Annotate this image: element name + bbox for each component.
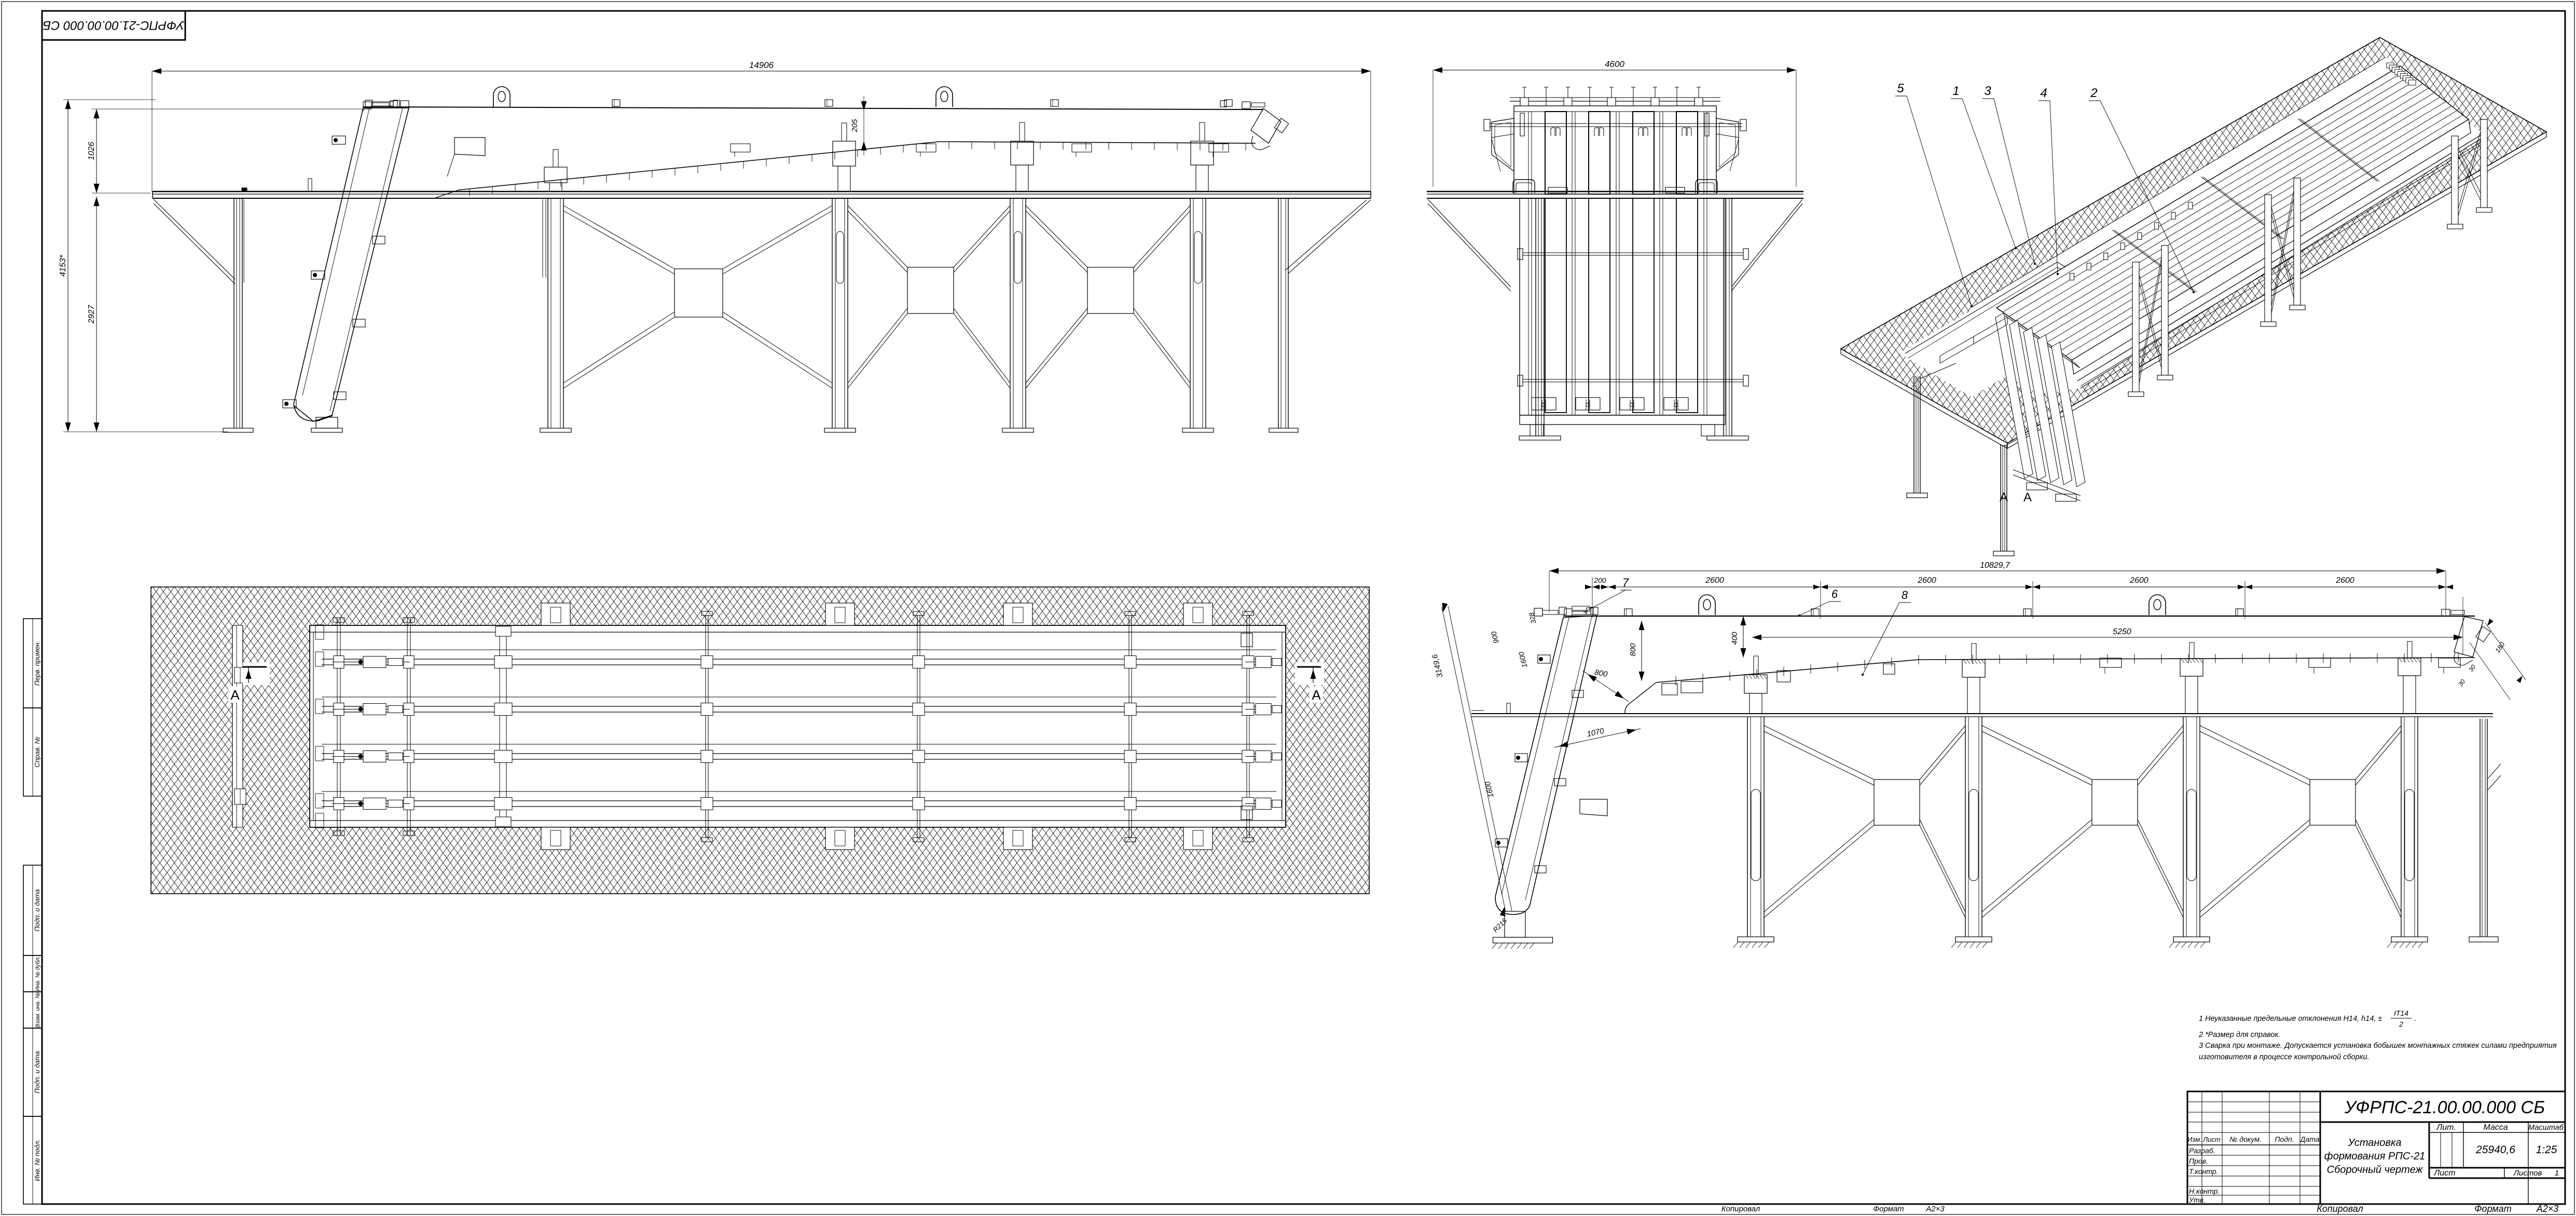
svg-text:Н.контр.: Н.контр.: [2189, 1187, 2220, 1195]
svg-text:А: А: [2000, 490, 2008, 504]
svg-text:Пров.: Пров.: [2189, 1157, 2208, 1165]
svg-text:Дата: Дата: [2299, 1135, 2320, 1143]
svg-text:2927: 2927: [87, 305, 96, 324]
svg-text:2600: 2600: [2129, 576, 2148, 585]
svg-text:Установка: Установка: [2347, 1137, 2401, 1149]
svg-text:А: А: [1312, 687, 1321, 703]
svg-text:IT14: IT14: [2394, 1009, 2408, 1017]
svg-text:4600: 4600: [1605, 59, 1624, 69]
svg-text:Листов: Листов: [2513, 1169, 2542, 1178]
svg-text:Справ. №: Справ. №: [33, 736, 41, 767]
svg-text:5: 5: [1897, 81, 1904, 95]
svg-text:Разраб.: Разраб.: [2189, 1146, 2215, 1155]
svg-text:400: 400: [1730, 632, 1739, 645]
svg-text:Лист: Лист: [2433, 1169, 2455, 1178]
svg-text:Масса: Масса: [2483, 1123, 2508, 1132]
svg-text:Копировал: Копировал: [2317, 1204, 2363, 1214]
svg-text:Подп. и дата: Подп. и дата: [33, 1051, 41, 1093]
svg-text:А2×3: А2×3: [2536, 1204, 2559, 1214]
svg-text:1:25: 1:25: [2536, 1144, 2557, 1156]
svg-text:Утв.: Утв.: [2188, 1196, 2206, 1204]
svg-text:Т.контр.: Т.контр.: [2189, 1167, 2218, 1176]
svg-text:Инв. № дубл.: Инв. № дубл.: [35, 956, 41, 991]
svg-text:Перв. примен.: Перв. примен.: [33, 641, 41, 686]
svg-text:Изм.: Изм.: [2187, 1136, 2202, 1143]
svg-text:205: 205: [850, 119, 859, 133]
svg-text:Лит.: Лит.: [2436, 1123, 2456, 1132]
svg-text:1: 1: [1952, 84, 1959, 98]
svg-text:А: А: [2023, 490, 2032, 504]
svg-text:Подп.: Подп.: [2275, 1135, 2294, 1143]
svg-text:1 Неуказанные предельные откл: 1 Неуказанные предельные отклонения Н14,…: [2199, 1015, 2382, 1023]
svg-text:Взам. инв. №: Взам. инв. №: [35, 992, 41, 1028]
svg-text:Инв. № подл.: Инв. № подл.: [33, 1139, 41, 1181]
svg-text:10829,7: 10829,7: [1980, 561, 2010, 570]
svg-text:Сборочный чертеж: Сборочный чертеж: [2327, 1164, 2423, 1176]
svg-text:УФРПС-21.00.00.000 СБ: УФРПС-21.00.00.000 СБ: [2344, 1098, 2545, 1117]
svg-text:14906: 14906: [749, 60, 774, 70]
svg-text:2: 2: [2090, 86, 2097, 100]
svg-text:2600: 2600: [2335, 576, 2354, 585]
svg-text:.: .: [2415, 1015, 2417, 1023]
svg-text:Лист: Лист: [2202, 1136, 2221, 1143]
svg-text:формования РПС-21: формования РПС-21: [2324, 1151, 2425, 1162]
svg-text:3 Сварка при монтаже. Допуска: 3 Сварка при монтаже. Допускается устано…: [2199, 1042, 2557, 1050]
svg-text:2600: 2600: [1917, 576, 1936, 585]
svg-text:200: 200: [1593, 576, 1606, 584]
svg-text:2 *Размер для справок.: 2 *Размер для справок.: [2198, 1031, 2280, 1039]
svg-text:800: 800: [1629, 643, 1637, 657]
svg-text:1: 1: [2555, 1169, 2559, 1178]
svg-text:7: 7: [1622, 576, 1629, 589]
svg-text:УФРПС-21.00.00.000 СБ: УФРПС-21.00.00.000 СБ: [43, 18, 185, 32]
svg-text:Формат: Формат: [2474, 1204, 2511, 1214]
svg-text:2: 2: [2399, 1020, 2403, 1028]
svg-text:1026: 1026: [87, 142, 96, 160]
svg-text:4: 4: [2040, 86, 2047, 100]
svg-text:2600: 2600: [1705, 576, 1724, 585]
svg-text:5250: 5250: [2113, 627, 2131, 636]
svg-text:№ докум.: № докум.: [2229, 1135, 2262, 1143]
svg-text:А2×3: А2×3: [1925, 1205, 1945, 1213]
svg-text:8: 8: [1902, 589, 1908, 602]
svg-text:25940,6: 25940,6: [2475, 1144, 2515, 1156]
svg-text:изготовителя в процессе контро: изготовителя в процессе контрольной сбор…: [2199, 1053, 2370, 1061]
svg-text:А: А: [230, 687, 240, 703]
svg-text:Подп. и дата: Подп. и дата: [33, 889, 41, 931]
svg-text:Формат: Формат: [1873, 1205, 1904, 1213]
svg-text:6: 6: [1831, 587, 1838, 600]
svg-text:4153*: 4153*: [59, 254, 67, 277]
svg-text:3: 3: [1984, 84, 1991, 98]
svg-text:Копировал: Копировал: [1721, 1205, 1760, 1213]
svg-text:Масштаб: Масштаб: [2528, 1124, 2564, 1132]
